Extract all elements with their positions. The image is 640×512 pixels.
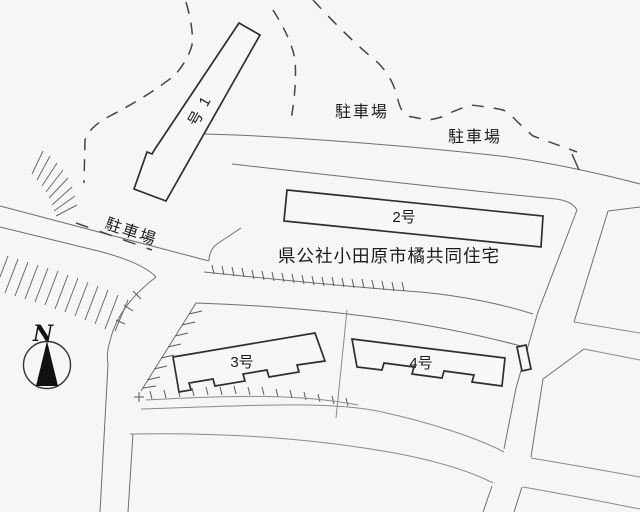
site-title: 県公社小田原市橘共同住宅 [278, 246, 500, 266]
road-network [0, 134, 640, 512]
building-4-label: 4号 [409, 355, 432, 372]
building-3-label: 3号 [230, 354, 253, 371]
north-arrow-icon [36, 341, 58, 386]
north-label: N [32, 321, 54, 347]
road-branch-upper-edge [574, 322, 640, 333]
road-west-vertical-left-edge [100, 277, 156, 512]
boundary-dashes-center [273, 10, 296, 120]
driveway-stall-ticks [212, 265, 404, 291]
road-south-lower-edge [130, 434, 640, 509]
road-branch-lower-edge [584, 349, 640, 360]
small-structure-outline [517, 345, 531, 371]
stall-cross-mark [134, 392, 144, 402]
boundary-end-tick [572, 154, 579, 170]
north-compass: N [24, 321, 71, 389]
slope-hatch-field [0, 256, 128, 331]
site-plan-map: 県公社小田原市橘共同住宅 2号 3号 4号 1 号 駐車場 駐車場 駐車場 N [0, 0, 640, 512]
site-plan-canvas: 県公社小田原市橘共同住宅 2号 3号 4号 1 号 駐車場 駐車場 駐車場 N [0, 0, 640, 512]
parking-label-west: 駐車場 [103, 215, 160, 250]
slope-hatch-fan-northwest [32, 151, 77, 216]
south-road-stall-baseline [146, 396, 358, 405]
lot-corner-line [209, 228, 241, 261]
parking-label-top-right: 駐車場 [448, 128, 502, 146]
boundary-dashes-east [313, 0, 577, 152]
road-north-lower-edge-east [608, 207, 640, 211]
parking-label-top-center: 駐車場 [335, 103, 389, 121]
road-west-vertical-right-edge [128, 434, 133, 512]
road-south-upper-edge [141, 405, 640, 477]
building-2-label: 2号 [392, 209, 415, 226]
